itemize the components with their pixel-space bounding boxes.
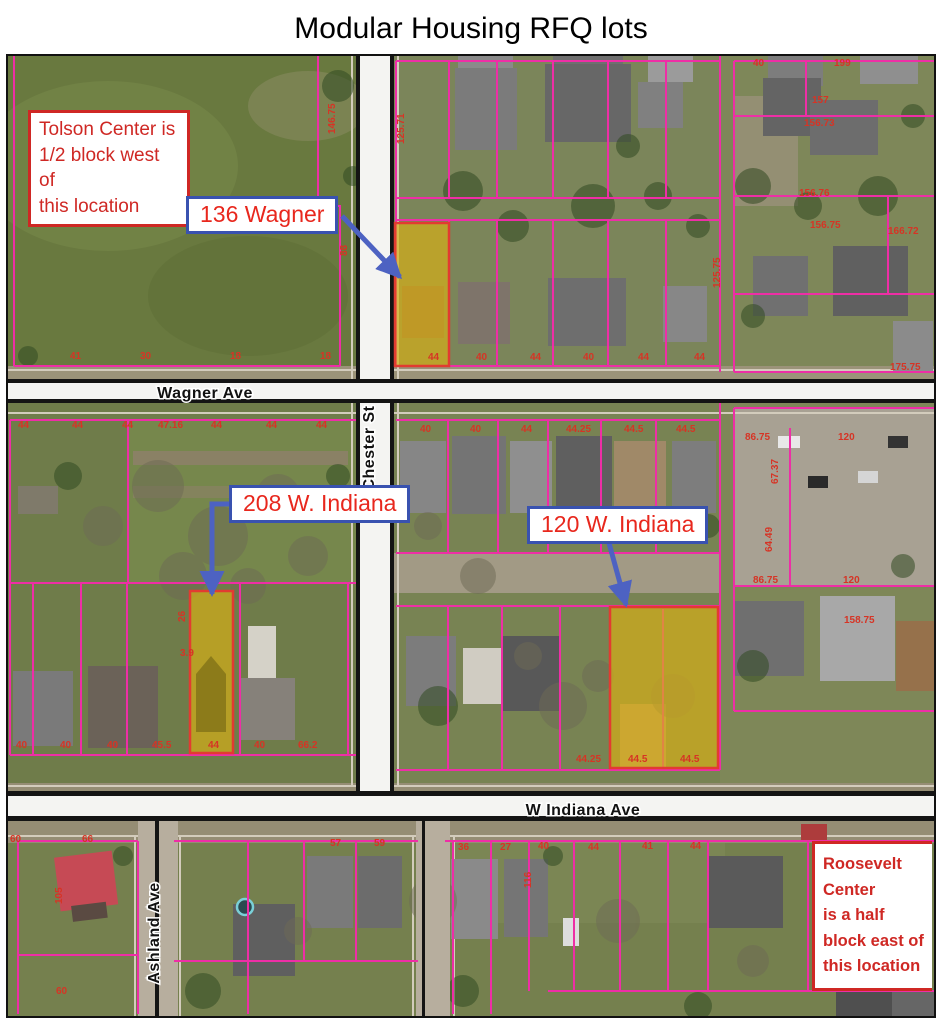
parcel-dimension-label: 40 bbox=[107, 740, 119, 751]
parcel-dimension-label: 59 bbox=[374, 838, 386, 849]
parcel-dimension-label: 44 bbox=[690, 841, 702, 852]
parcel-dimension-label: 40 bbox=[470, 424, 482, 435]
parcel-dimension-label: 86.75 bbox=[753, 575, 778, 586]
parcel-dimension-label: 88 bbox=[339, 244, 350, 256]
lot-label-120-w-indiana: 120 W. Indiana bbox=[527, 506, 708, 544]
parcel-dimension-label: 199 bbox=[834, 58, 851, 69]
parcel-dimension-label: 146.75 bbox=[327, 103, 338, 134]
parcel-dimension-label: 27 bbox=[500, 842, 512, 853]
parcel-dimension-label: 44.5 bbox=[628, 754, 648, 765]
parcel-dimension-label: 156.76 bbox=[799, 188, 830, 199]
parcel-dimension-label: 66.2 bbox=[298, 740, 318, 751]
parcel-dimension-label: 57 bbox=[330, 838, 342, 849]
parcel-dimension-label: 44 bbox=[122, 420, 134, 431]
parcel-dimension-label: 40 bbox=[16, 740, 28, 751]
aerial-parcel-map: 41301818146.75125.7188444044404444125.75… bbox=[6, 54, 936, 1018]
parcel-dimension-label: 18 bbox=[320, 351, 332, 362]
page-title: Modular Housing RFQ lots bbox=[0, 12, 942, 46]
parcel-dimension-label: 45.5 bbox=[152, 740, 172, 751]
parcel-dimension-label: 44 bbox=[521, 424, 533, 435]
parcel-dimension-label: 18 bbox=[230, 351, 242, 362]
parcel-dimension-label: 60 bbox=[56, 986, 68, 997]
callout-roosevelt-center: Roosevelt Center is a half block east of… bbox=[812, 841, 932, 991]
lot-120-w-indiana bbox=[610, 607, 718, 768]
street-label-ashland: Ashland Ave bbox=[146, 882, 163, 983]
parcel-dimension-label: 30 bbox=[140, 351, 152, 362]
parcel-dimension-label: 105 bbox=[54, 887, 65, 904]
parcel-dimension-label: 166.72 bbox=[888, 226, 919, 237]
parcel-dimension-label: 40 bbox=[60, 740, 72, 751]
parcel-dimension-label: 41 bbox=[70, 351, 82, 362]
parcel-dimension-label: 44 bbox=[428, 352, 440, 363]
parcel-dimension-label: 156.73 bbox=[804, 118, 835, 129]
parcel-dimension-label: 44.25 bbox=[566, 424, 591, 435]
parcel-dimension-label: 44 bbox=[694, 352, 706, 363]
parcel-dimension-label: 36 bbox=[458, 842, 470, 853]
parcel-dimension-label: 44.5 bbox=[680, 754, 700, 765]
parcel-dimension-label: 44 bbox=[266, 420, 278, 431]
parcel-dimension-label: 40 bbox=[753, 58, 765, 69]
parcel-dimension-label: 26 bbox=[177, 610, 188, 622]
lot-label-136-wagner: 136 Wagner bbox=[186, 196, 338, 234]
parcel-dimension-label: 44 bbox=[18, 420, 30, 431]
parcel-dimension-label: 120 bbox=[843, 575, 860, 586]
parcel-dimension-label: 3.9 bbox=[180, 648, 194, 659]
parcel-dimension-label: 156.75 bbox=[810, 220, 841, 231]
parcel-dimension-label: 44 bbox=[588, 842, 600, 853]
parcel-dimension-label: 64.49 bbox=[764, 527, 775, 552]
parcel-dimension-label: 44 bbox=[638, 352, 650, 363]
street-label-indiana: W Indiana Ave bbox=[526, 802, 641, 819]
parcel-dimension-label: 60 bbox=[10, 834, 22, 845]
parcel-dimension-label: 44.25 bbox=[576, 754, 601, 765]
lot-136-wagner bbox=[395, 223, 449, 366]
parcel-dimension-label: 40 bbox=[538, 841, 550, 852]
parcel-dimension-label: 40 bbox=[254, 740, 266, 751]
parcel-dimension-label: 47.16 bbox=[158, 420, 183, 431]
street-label-chester: Chester St bbox=[361, 405, 378, 490]
parcel-dimension-label: 40 bbox=[476, 352, 488, 363]
parcel-dimension-label: 44 bbox=[208, 740, 220, 751]
parcel-dimension-label: 125.71 bbox=[396, 113, 407, 144]
parcel-dimension-label: 44.5 bbox=[676, 424, 696, 435]
parcel-dimension-label: 66 bbox=[82, 834, 94, 845]
parcel-dimension-label: 41 bbox=[642, 841, 654, 852]
callout-tolson-center: Tolson Center is 1/2 block west of this … bbox=[28, 110, 190, 227]
parcel-dimension-label: 40 bbox=[420, 424, 432, 435]
parcel-dimension-label: 44 bbox=[530, 352, 542, 363]
parcel-dimension-label: 67.37 bbox=[770, 459, 781, 484]
parcel-dimension-label: 44.5 bbox=[624, 424, 644, 435]
parcel-dimension-label: 158.75 bbox=[844, 615, 875, 626]
parcel-dimension-label: 86.75 bbox=[745, 432, 770, 443]
parcel-dimension-label: 40 bbox=[583, 352, 595, 363]
parcel-dimension-label: 120 bbox=[838, 432, 855, 443]
parcel-dimension-label: 44 bbox=[211, 420, 223, 431]
street-label-wagner: Wagner Ave bbox=[157, 385, 253, 402]
parcel-dimension-label: 125.75 bbox=[712, 257, 723, 288]
lot-label-208-w-indiana: 208 W. Indiana bbox=[229, 485, 410, 523]
parcel-dimension-label: 157 bbox=[812, 95, 829, 106]
parcel-dimension-label: 116 bbox=[523, 871, 534, 888]
parcel-dimension-label: 175.75 bbox=[890, 362, 921, 373]
parcel-dimension-label: 44 bbox=[316, 420, 328, 431]
parcel-dimension-label: 44 bbox=[72, 420, 84, 431]
